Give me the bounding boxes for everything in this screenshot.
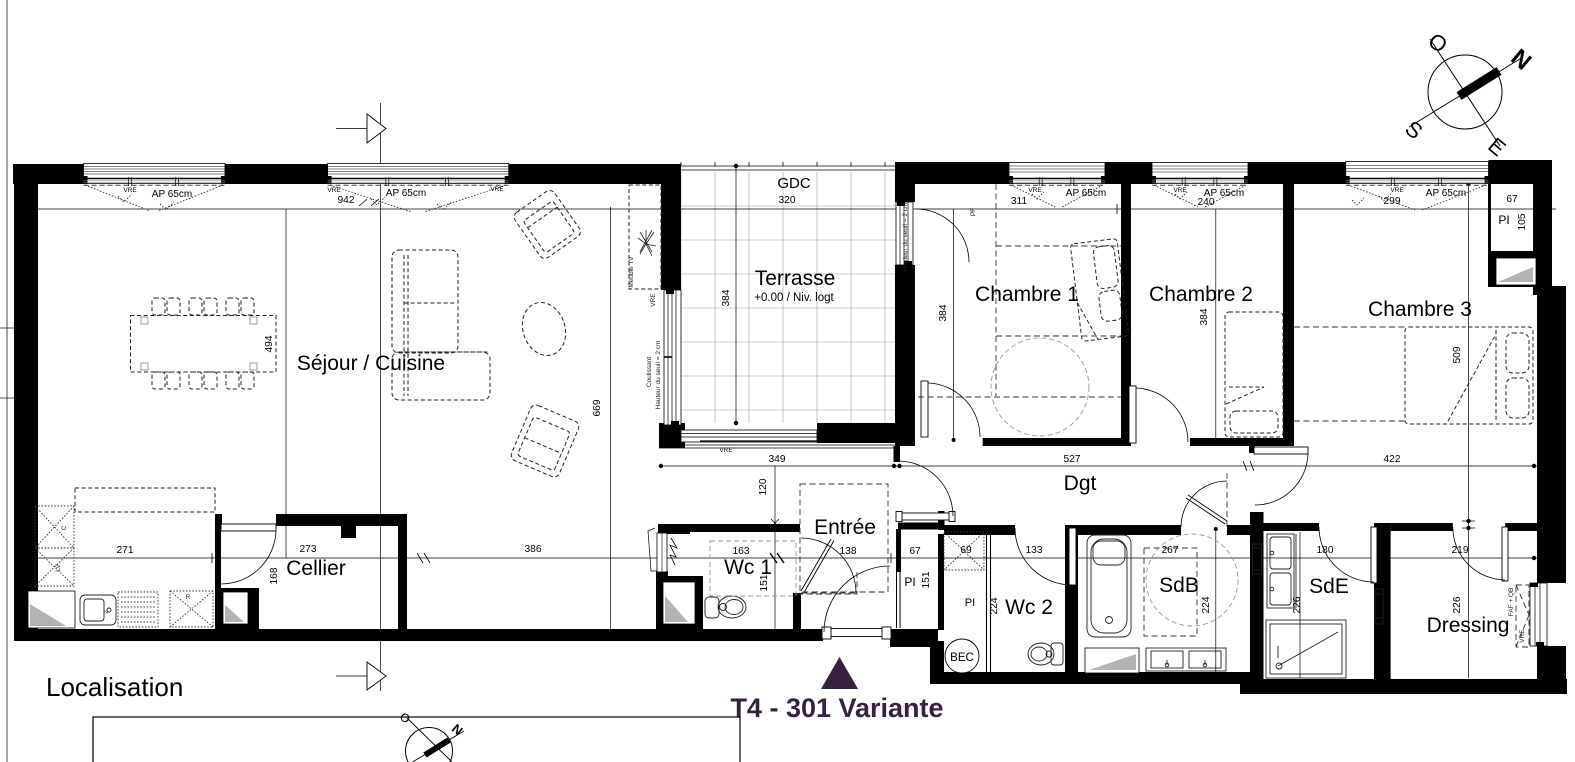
svg-text:311: 311 — [1011, 196, 1028, 207]
svg-text:224: 224 — [989, 597, 1000, 614]
svg-text:527: 527 — [1064, 454, 1081, 465]
svg-text:151: 151 — [921, 571, 932, 588]
svg-text:Wc 2: Wc 2 — [1005, 596, 1053, 619]
svg-text:105: 105 — [1517, 213, 1528, 230]
svg-text:AP 65cm: AP 65cm — [1066, 188, 1106, 199]
svg-text:384: 384 — [938, 304, 949, 321]
svg-text:BEC: BEC — [950, 652, 974, 664]
svg-text:386: 386 — [525, 544, 542, 555]
svg-text:Entrée: Entrée — [814, 516, 876, 539]
svg-text:VRE: VRE — [1173, 187, 1187, 194]
svg-text:Cellier: Cellier — [286, 557, 346, 580]
svg-text:151: 151 — [759, 574, 770, 591]
svg-text:VRE: VRE — [1390, 187, 1404, 194]
svg-text:VRE: VRE — [719, 447, 733, 454]
svg-text:FAF + QB: FAF + QB — [1508, 588, 1515, 617]
svg-text:AP 65cm: AP 65cm — [386, 188, 426, 199]
svg-text:+0.00 / Niv. logt: +0.00 / Niv. logt — [754, 292, 834, 304]
svg-text:384: 384 — [721, 289, 732, 306]
svg-text:69: 69 — [960, 545, 972, 556]
svg-text:PI: PI — [904, 575, 915, 589]
svg-text:224: 224 — [1201, 596, 1212, 613]
svg-text:494: 494 — [264, 335, 275, 352]
svg-text:180: 180 — [1317, 545, 1334, 556]
svg-text:669: 669 — [592, 399, 603, 416]
svg-text:R: R — [186, 594, 191, 601]
svg-text:PI: PI — [1498, 213, 1509, 227]
svg-text:Hauteur du seuil = 2 cm: Hauteur du seuil = 2 cm — [655, 341, 662, 410]
svg-text:VRE: VRE — [650, 293, 657, 307]
svg-text:Séjour / Cuisine: Séjour / Cuisine — [297, 352, 445, 375]
svg-text:138: 138 — [840, 546, 857, 557]
svg-text:AP 65cm: AP 65cm — [1426, 188, 1466, 199]
svg-text:T4 - 301 Variante: T4 - 301 Variante — [730, 693, 943, 723]
svg-text:LV: LV — [55, 564, 62, 572]
svg-text:VRE: VRE — [1519, 629, 1526, 643]
svg-text:VRE: VRE — [490, 186, 504, 193]
svg-text:120: 120 — [758, 478, 769, 495]
svg-text:VRE: VRE — [327, 187, 341, 194]
svg-text:Chambre 1: Chambre 1 — [975, 283, 1079, 306]
svg-text:Meuble TV: Meuble TV — [628, 256, 635, 288]
svg-text:219: 219 — [1452, 545, 1469, 556]
svg-text:422: 422 — [1384, 454, 1401, 465]
svg-text:271: 271 — [117, 545, 134, 556]
svg-text:Dgt: Dgt — [1064, 472, 1097, 495]
svg-text:Coulissant: Coulissant — [646, 357, 653, 388]
svg-text:67: 67 — [1506, 194, 1518, 205]
svg-text:133: 133 — [1026, 545, 1043, 556]
svg-text:509: 509 — [1452, 346, 1463, 363]
svg-text:Chambre 3: Chambre 3 — [1368, 298, 1472, 321]
svg-text:AP 65cm: AP 65cm — [1204, 188, 1244, 199]
svg-text:PI: PI — [965, 597, 975, 609]
svg-text:Dressing: Dressing — [1427, 614, 1510, 637]
svg-text:267: 267 — [1162, 545, 1179, 556]
svg-text:Hauteur du seuil = 2 cm: Hauteur du seuil = 2 cm — [902, 203, 909, 272]
svg-text:SdB: SdB — [1159, 574, 1199, 597]
svg-text:GDC: GDC — [777, 175, 811, 192]
svg-text:SdE: SdE — [1309, 575, 1349, 598]
svg-text:273: 273 — [300, 544, 317, 555]
svg-text:2: 2 — [103, 610, 110, 614]
svg-text:299: 299 — [1384, 196, 1401, 207]
svg-text:Localisation: Localisation — [46, 672, 183, 702]
svg-text:168: 168 — [269, 567, 280, 584]
svg-text:PF: PF — [970, 208, 977, 216]
svg-text:320: 320 — [779, 195, 796, 206]
svg-text:VRE: VRE — [1028, 187, 1042, 194]
svg-text:226: 226 — [1452, 596, 1463, 613]
svg-text:AP 65cm: AP 65cm — [152, 189, 192, 200]
svg-text:Chambre 2: Chambre 2 — [1149, 283, 1253, 306]
svg-text:163: 163 — [733, 546, 750, 557]
svg-text:C: C — [61, 525, 68, 530]
svg-text:VRE: VRE — [123, 187, 137, 194]
svg-text:349: 349 — [769, 454, 786, 465]
svg-text:Terrasse: Terrasse — [755, 267, 836, 290]
svg-text:226: 226 — [1292, 596, 1303, 613]
svg-text:67: 67 — [909, 546, 921, 557]
svg-text:942: 942 — [338, 195, 355, 206]
svg-text:384: 384 — [1199, 308, 1210, 325]
